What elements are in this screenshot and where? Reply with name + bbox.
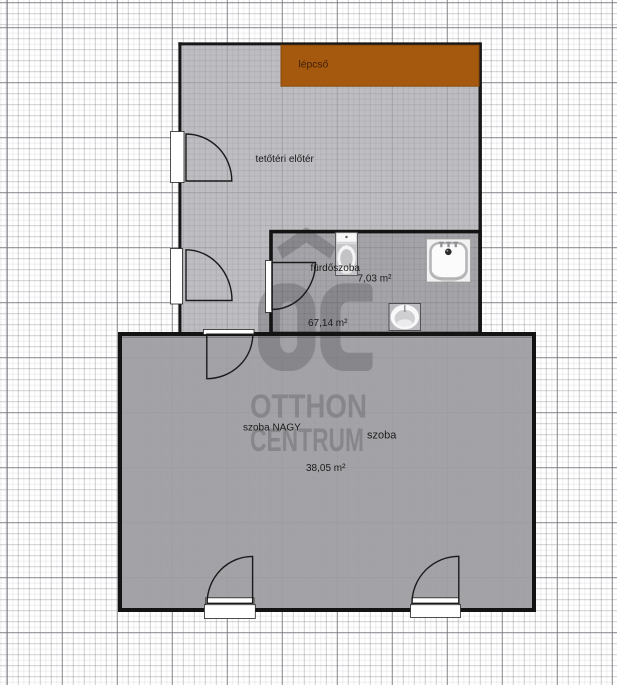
svg-text:38,05 m²: 38,05 m² [306,463,346,474]
svg-text:szoba NAGY: szoba NAGY [243,423,301,434]
svg-text:lépcső: lépcső [299,59,329,70]
svg-text:7,03 m²: 7,03 m² [358,273,393,284]
svg-text:szoba: szoba [367,429,397,441]
svg-text:fürdőszoba: fürdőszoba [311,263,361,274]
svg-text:tetőtéri előtér: tetőtéri előtér [256,154,315,165]
svg-text:67,14 m²: 67,14 m² [308,318,348,329]
svg-text:OTTHON: OTTHON [250,387,367,424]
